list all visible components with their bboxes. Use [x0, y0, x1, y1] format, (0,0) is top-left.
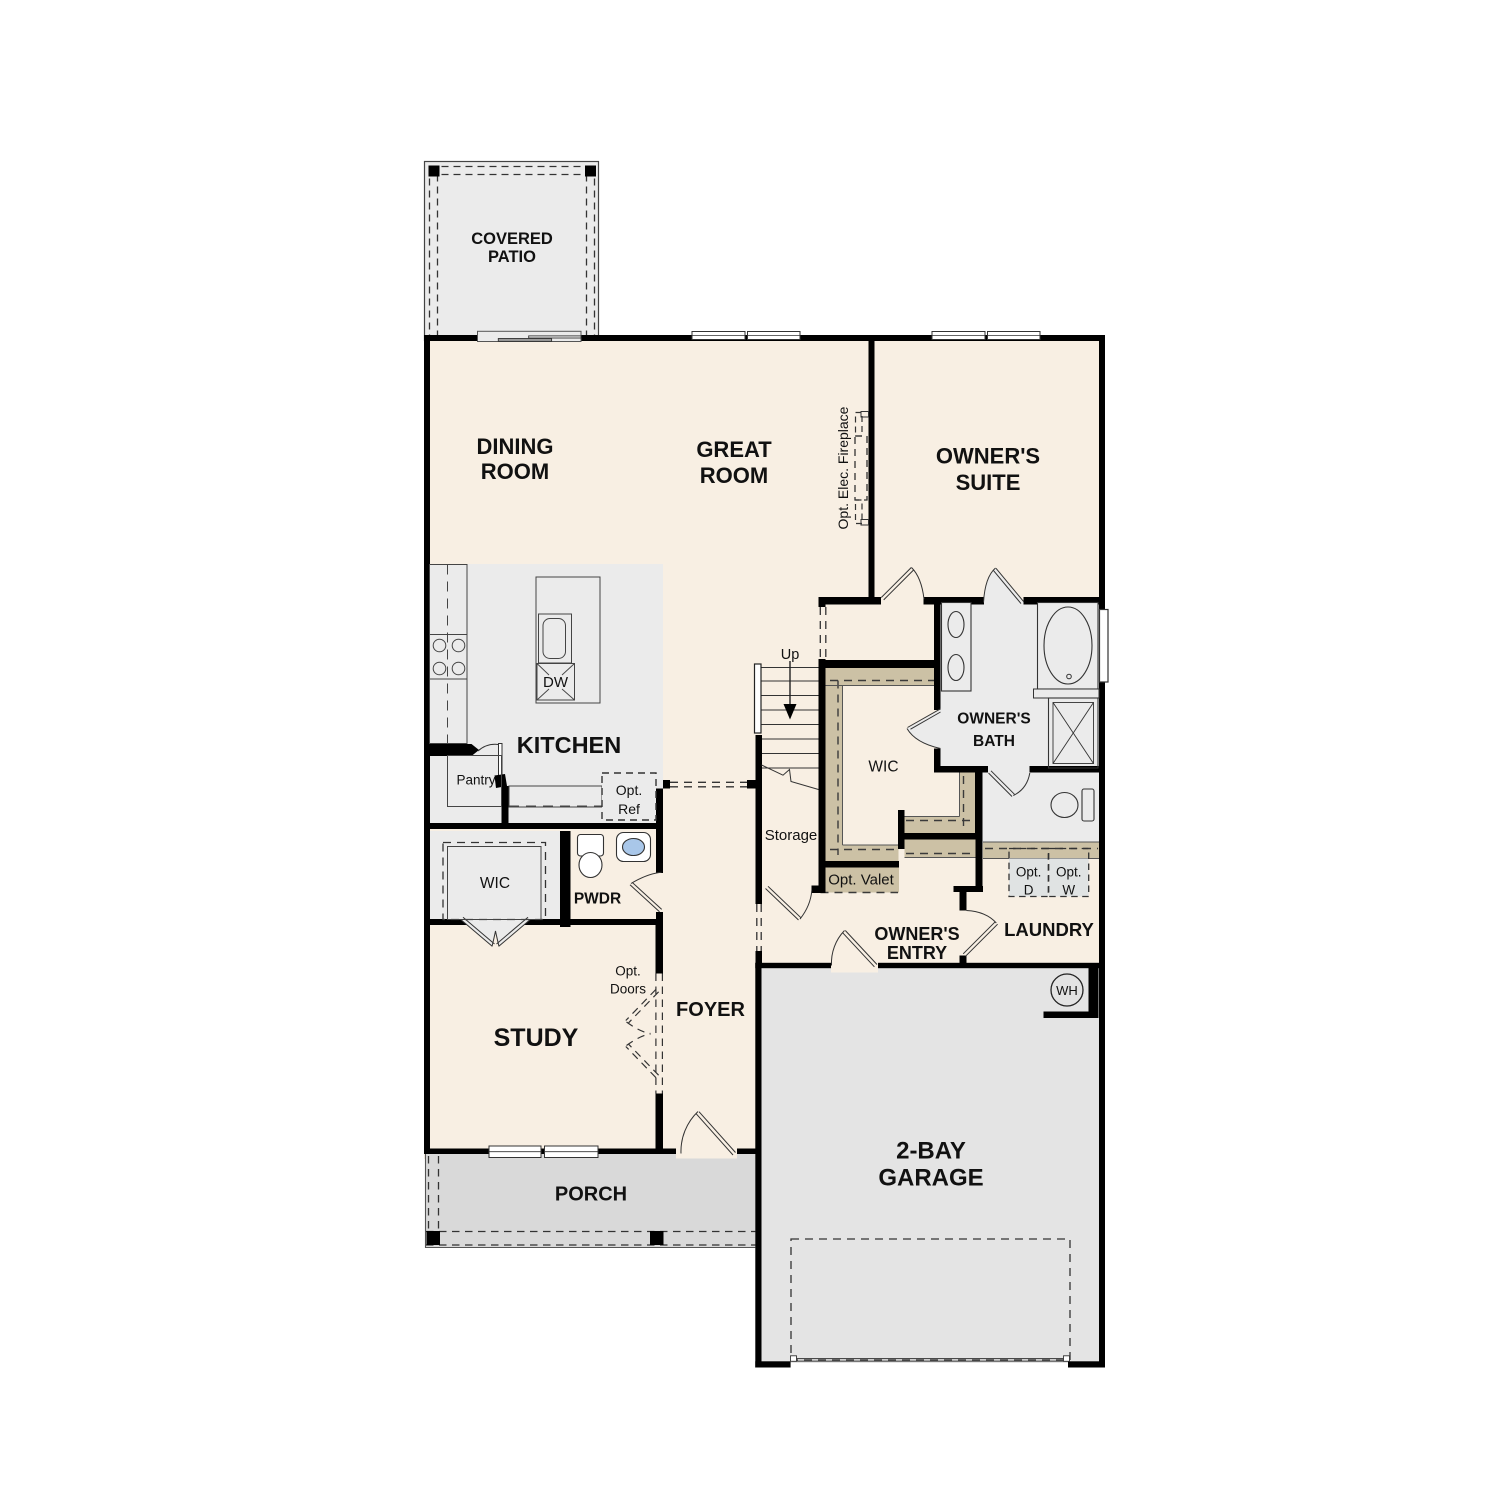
svg-text:DW: DW: [543, 674, 569, 691]
svg-text:ENTRY: ENTRY: [887, 943, 947, 963]
svg-text:D: D: [1024, 883, 1034, 898]
svg-text:Opt.: Opt.: [1056, 865, 1082, 880]
svg-text:COVERED: COVERED: [471, 230, 553, 248]
svg-text:KITCHEN: KITCHEN: [517, 732, 621, 758]
svg-text:BATH: BATH: [973, 733, 1015, 750]
svg-text:OWNER'S: OWNER'S: [936, 444, 1040, 469]
svg-text:STUDY: STUDY: [494, 1024, 579, 1052]
svg-text:Opt. Valet: Opt. Valet: [828, 872, 894, 889]
svg-text:Storage: Storage: [765, 827, 818, 844]
svg-text:ROOM: ROOM: [481, 459, 549, 484]
svg-text:WIC: WIC: [868, 759, 898, 776]
svg-text:Opt. Elec. Fireplace: Opt. Elec. Fireplace: [835, 406, 851, 529]
svg-text:ROOM: ROOM: [700, 463, 768, 488]
svg-text:WH: WH: [1056, 983, 1078, 998]
svg-text:OWNER'S: OWNER'S: [957, 711, 1030, 728]
svg-text:OWNER'S: OWNER'S: [874, 924, 959, 944]
svg-text:Ref: Ref: [618, 801, 640, 817]
svg-text:LAUNDRY: LAUNDRY: [1004, 919, 1094, 940]
svg-text:PATIO: PATIO: [488, 248, 536, 266]
svg-text:SUITE: SUITE: [956, 470, 1021, 495]
svg-text:Doors: Doors: [610, 982, 646, 997]
svg-text:Opt.: Opt.: [616, 782, 642, 798]
svg-text:W: W: [1062, 883, 1075, 898]
svg-text:DINING: DINING: [477, 434, 554, 459]
svg-text:GARAGE: GARAGE: [878, 1165, 983, 1192]
svg-text:Opt.: Opt.: [1016, 865, 1042, 880]
svg-text:Up: Up: [781, 647, 800, 663]
svg-text:PORCH: PORCH: [555, 1184, 627, 1206]
svg-text:Pantry: Pantry: [456, 773, 495, 788]
svg-text:PWDR: PWDR: [574, 891, 621, 908]
svg-text:WIC: WIC: [480, 875, 510, 892]
svg-text:2-BAY: 2-BAY: [896, 1138, 966, 1165]
svg-text:GREAT: GREAT: [696, 437, 772, 462]
svg-text:Opt.: Opt.: [615, 964, 641, 979]
svg-text:FOYER: FOYER: [676, 999, 745, 1021]
